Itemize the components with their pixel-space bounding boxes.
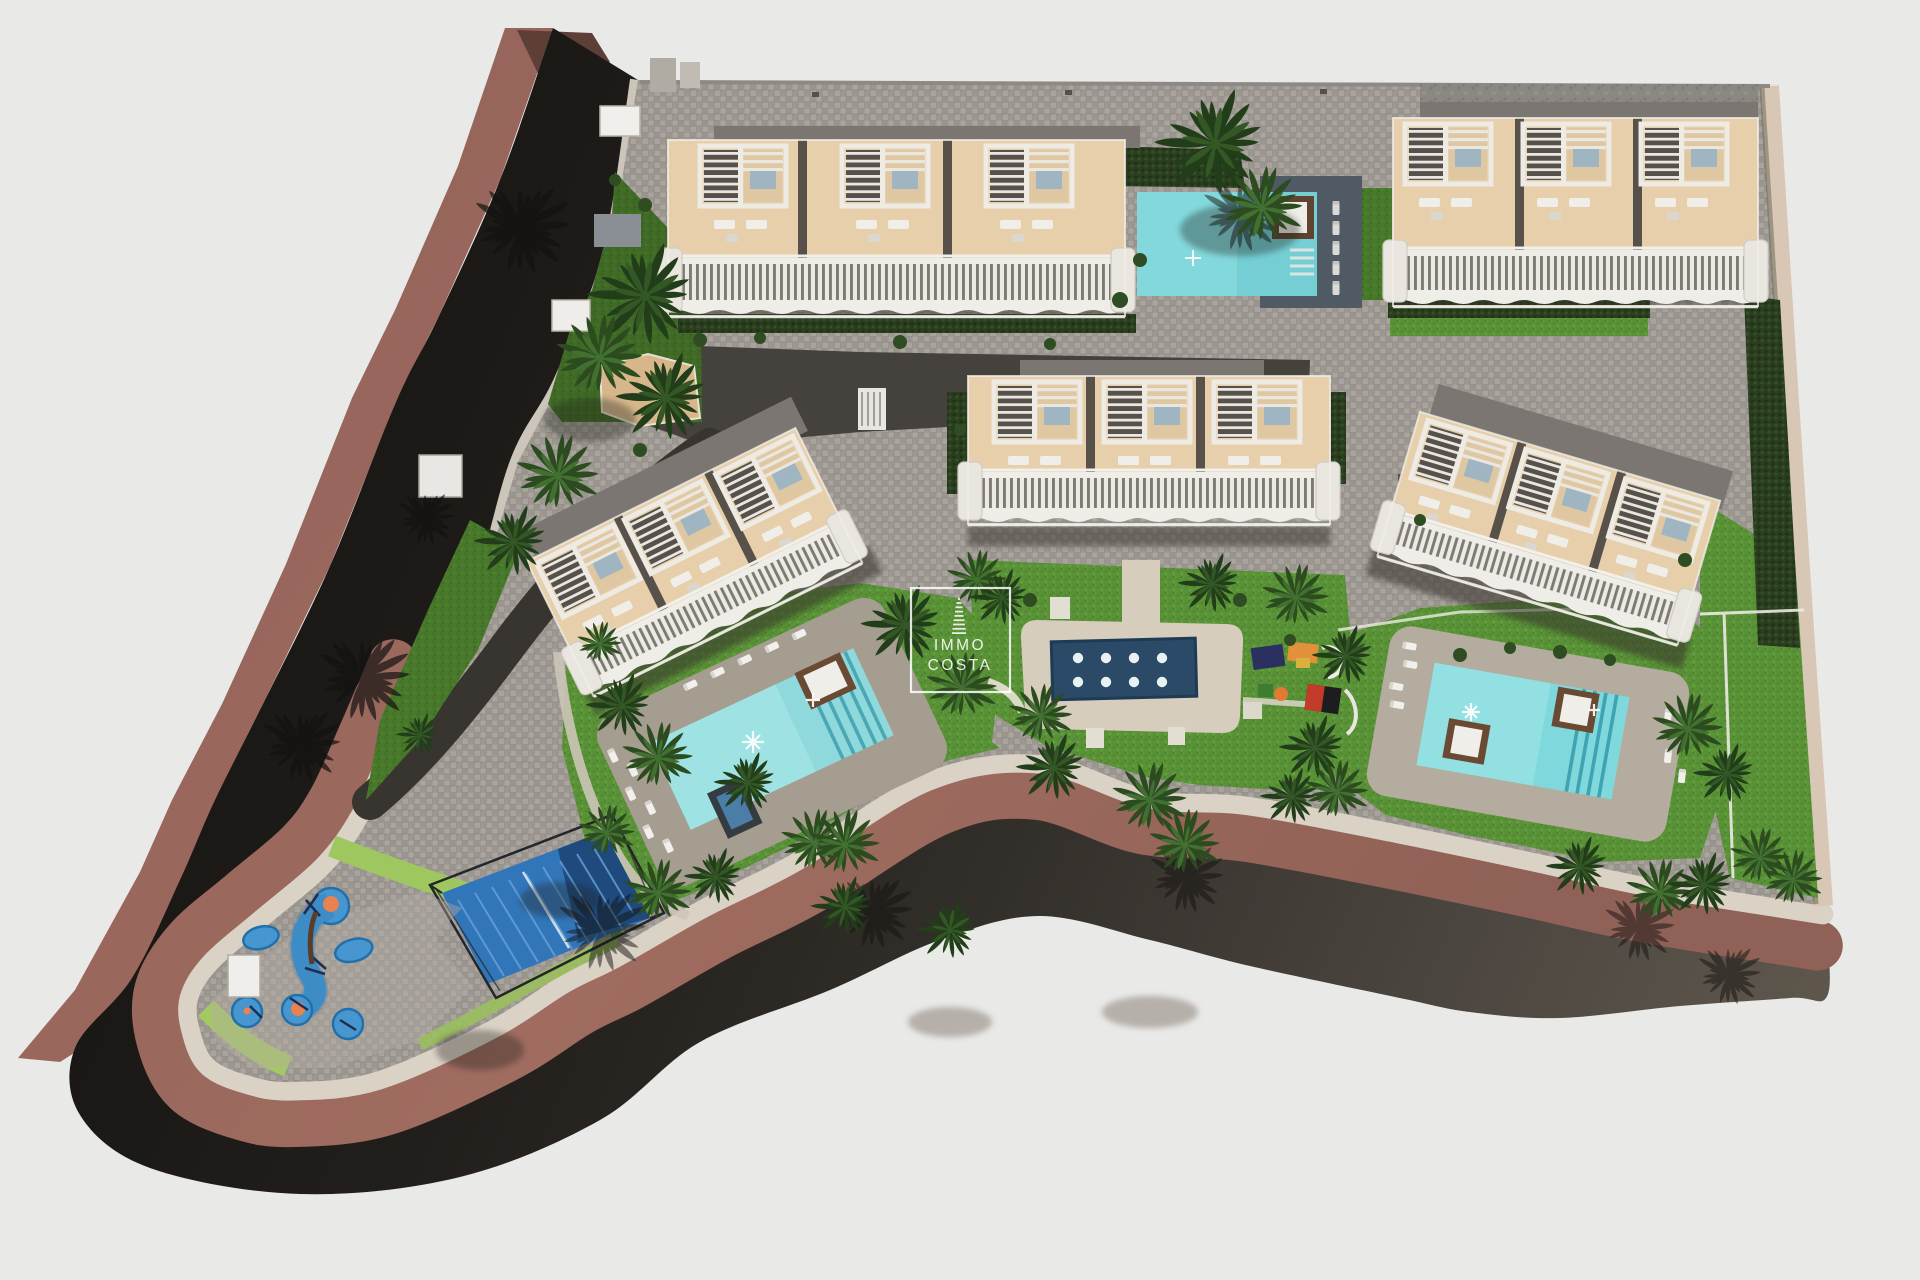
svg-text:IMMO: IMMO [934, 637, 986, 654]
svg-text:COSTA: COSTA [928, 657, 993, 674]
